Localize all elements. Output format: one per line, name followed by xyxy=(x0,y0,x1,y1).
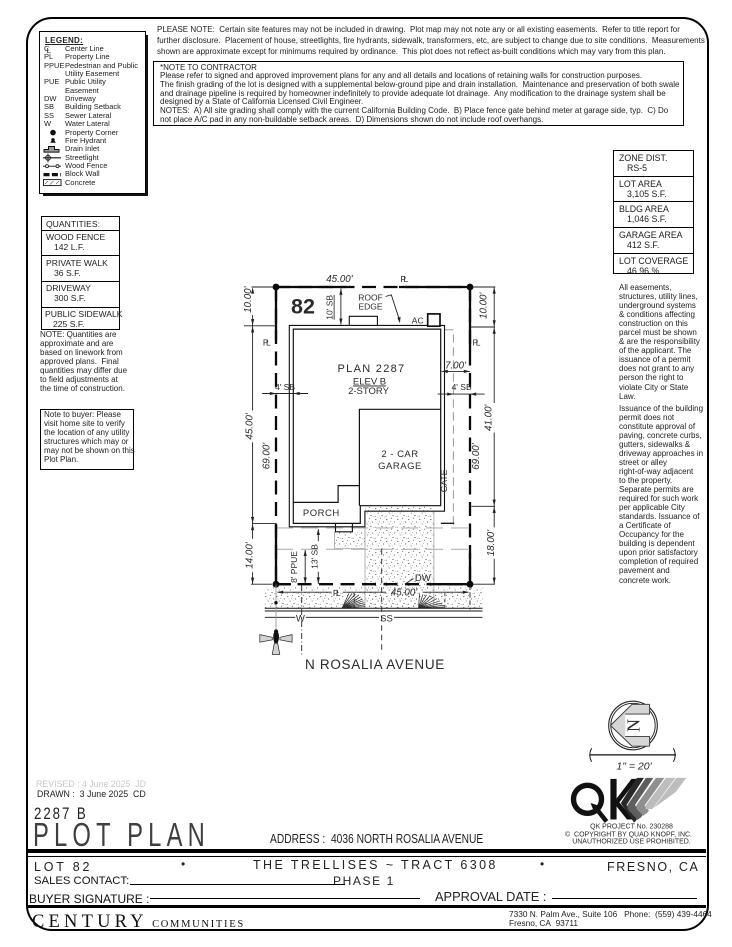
svg-text:AC: AC xyxy=(412,316,424,326)
svg-text:N: N xyxy=(624,719,644,732)
svg-text:4' SB: 4' SB xyxy=(452,382,472,392)
svg-text:© COPYRIGHT BY QUAD KNOPF, IN: © COPYRIGHT BY QUAD KNOPF, INC. xyxy=(565,831,692,839)
svg-text:PL: PL xyxy=(400,274,408,284)
svg-text:1" = 20': 1" = 20' xyxy=(616,761,652,773)
svg-text:82: 82 xyxy=(291,295,315,319)
svg-text:EDGE: EDGE xyxy=(358,302,382,312)
svg-text:10' SB: 10' SB xyxy=(325,295,335,320)
svg-text:DW: DW xyxy=(415,573,431,584)
svg-text:PORCH: PORCH xyxy=(303,508,340,519)
svg-text:14.00': 14.00' xyxy=(245,541,256,569)
svg-text:41.00': 41.00' xyxy=(483,403,494,431)
svg-text:PL: PL xyxy=(263,337,271,347)
svg-text:PL: PL xyxy=(473,337,481,347)
svg-text:10.00': 10.00' xyxy=(479,291,490,319)
svg-text:2 - CAR: 2 - CAR xyxy=(381,449,418,460)
svg-text:45.00': 45.00' xyxy=(326,274,354,285)
svg-text:2-STORY: 2-STORY xyxy=(348,386,389,397)
svg-text:45.00': 45.00' xyxy=(391,587,419,598)
svg-text:W: W xyxy=(296,614,305,625)
svg-text:QK PROJECT No. 230288: QK PROJECT No. 230288 xyxy=(590,824,673,831)
svg-text:PL: PL xyxy=(333,588,341,598)
svg-text:GARAGE: GARAGE xyxy=(378,461,422,472)
svg-text:PLAN 2287: PLAN 2287 xyxy=(338,363,406,375)
svg-text:N ROSALIA AVENUE: N ROSALIA AVENUE xyxy=(305,657,445,672)
svg-text:8' PPUE: 8' PPUE xyxy=(289,551,299,583)
svg-text:69.00': 69.00' xyxy=(471,442,482,470)
svg-text:UNAUTHORIZED USE PROHIBITED.: UNAUTHORIZED USE PROHIBITED. xyxy=(572,839,691,846)
svg-text:45.00': 45.00' xyxy=(244,412,255,440)
svg-text:GATE: GATE xyxy=(439,469,449,492)
svg-text:13' SB: 13' SB xyxy=(310,544,320,569)
svg-text:69.00': 69.00' xyxy=(261,442,272,470)
svg-text:7.00': 7.00' xyxy=(445,361,467,372)
svg-text:4' SB: 4' SB xyxy=(275,382,295,392)
svg-text:18.00': 18.00' xyxy=(486,529,497,557)
